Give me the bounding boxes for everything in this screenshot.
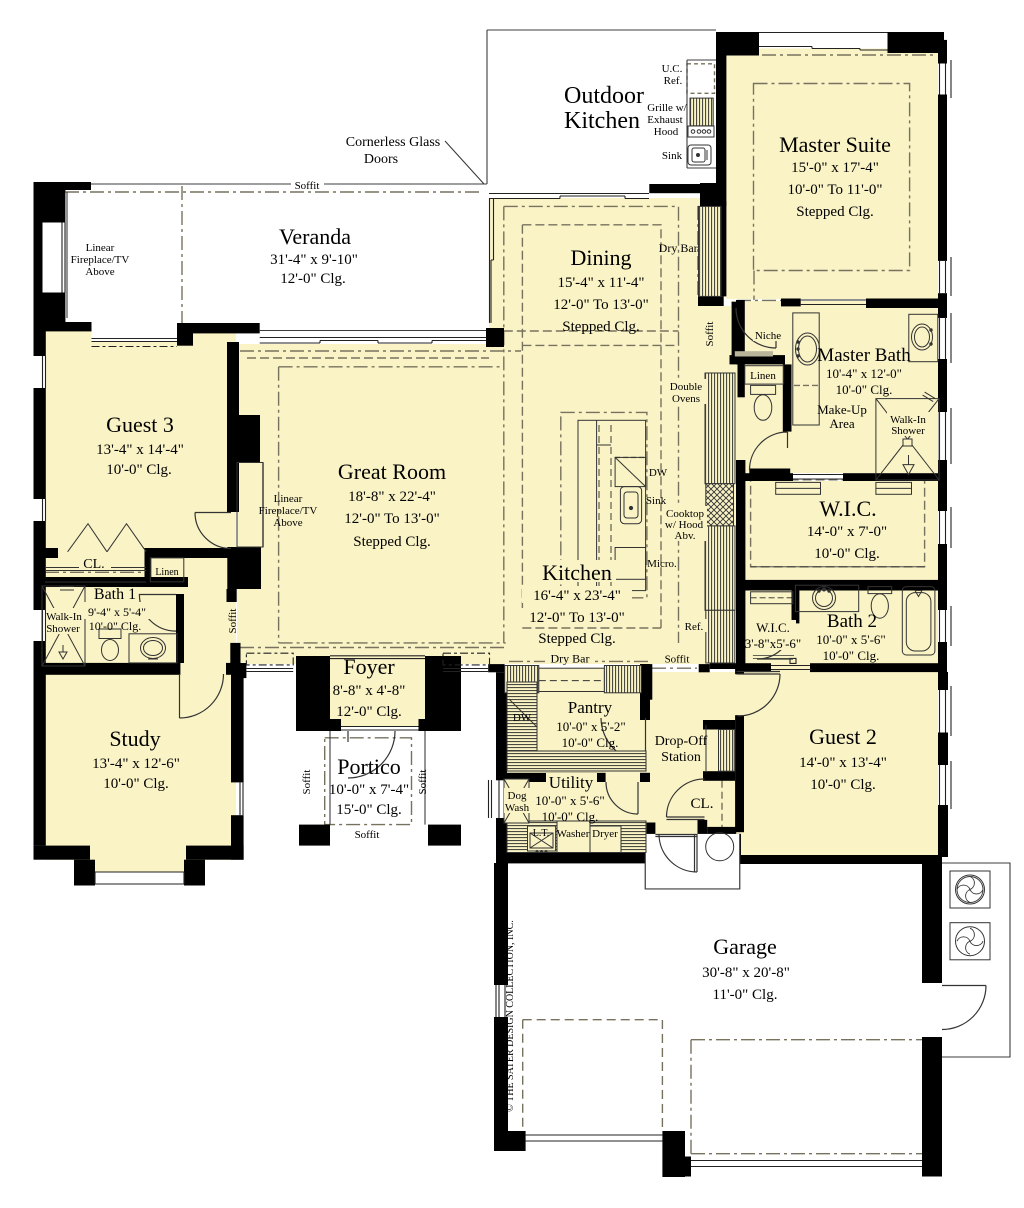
svg-text:Dog: Dog: [508, 790, 527, 802]
svg-text:13'-4" x 12'-6": 13'-4" x 12'-6": [92, 756, 180, 772]
svg-text:12'-0" Clg.: 12'-0" Clg.: [280, 271, 346, 287]
svg-text:Area: Area: [829, 416, 854, 431]
svg-text:DW: DW: [513, 712, 532, 724]
svg-text:Soffit: Soffit: [301, 770, 313, 795]
svg-text:Soffit: Soffit: [665, 654, 690, 666]
svg-text:11'-0" Clg.: 11'-0" Clg.: [713, 987, 778, 1003]
svg-text:DW: DW: [649, 467, 668, 479]
svg-text:12'-0" To 13'-0": 12'-0" To 13'-0": [344, 511, 440, 527]
svg-text:Doors: Doors: [364, 152, 398, 167]
svg-text:U.C.: U.C.: [662, 63, 683, 75]
svg-text:Walk-In: Walk-In: [46, 611, 82, 623]
svg-text:CL.: CL.: [83, 557, 104, 572]
svg-text:Above: Above: [273, 517, 302, 529]
svg-text:Linen: Linen: [155, 567, 178, 578]
svg-text:14'-0" x 13'-4": 14'-0" x 13'-4": [799, 755, 887, 771]
svg-text:10'-0" Clg.: 10'-0" Clg.: [814, 546, 880, 562]
svg-text:30'-8" x 20'-8": 30'-8" x 20'-8": [702, 965, 790, 981]
svg-text:Soffit: Soffit: [355, 829, 380, 841]
svg-text:31'-4" x 9'-10": 31'-4" x 9'-10": [270, 252, 358, 268]
svg-text:Master Suite: Master Suite: [779, 132, 891, 157]
svg-text:Linen: Linen: [750, 370, 776, 382]
svg-text:Utility: Utility: [549, 773, 594, 792]
svg-text:Foyer: Foyer: [343, 654, 395, 679]
svg-text:L.T.: L.T.: [533, 828, 549, 839]
svg-text:Kitchen: Kitchen: [542, 560, 612, 585]
svg-text:Study: Study: [109, 726, 160, 751]
svg-text:13'-4" x 14'-4": 13'-4" x 14'-4": [96, 442, 184, 458]
svg-text:Double: Double: [670, 381, 703, 393]
svg-text:Soffit: Soffit: [704, 322, 716, 347]
svg-text:Outdoor: Outdoor: [564, 83, 644, 109]
svg-text:Make-Up: Make-Up: [817, 402, 867, 417]
svg-text:Dry Bar: Dry Bar: [551, 652, 590, 666]
svg-text:W.I.C.: W.I.C.: [819, 496, 876, 521]
svg-text:Cornerless Glass: Cornerless Glass: [346, 135, 441, 150]
svg-text:10'-0" Clg.: 10'-0" Clg.: [823, 648, 880, 663]
svg-text:Master Bath: Master Bath: [817, 345, 911, 366]
svg-text:15'-0" Clg.: 15'-0" Clg.: [336, 802, 402, 818]
svg-text:10'-0" Clg.: 10'-0" Clg.: [106, 462, 172, 478]
svg-text:Drop-Off: Drop-Off: [655, 734, 708, 749]
svg-text:16'-4" x 23'-4": 16'-4" x 23'-4": [533, 588, 621, 604]
svg-text:Fireplace/TV: Fireplace/TV: [259, 505, 318, 517]
svg-text:10'-0" x 5'-6": 10'-0" x 5'-6": [535, 793, 604, 808]
svg-text:10'-0" x 7'-4": 10'-0" x 7'-4": [329, 782, 409, 798]
svg-text:12'-0" To 13'-0": 12'-0" To 13'-0": [553, 297, 649, 313]
svg-text:Ref.: Ref.: [685, 621, 704, 633]
svg-text:Wash: Wash: [505, 802, 530, 814]
svg-text:Above: Above: [85, 266, 114, 278]
svg-text:Sink: Sink: [662, 150, 683, 162]
svg-text:10'-0" Clg.: 10'-0" Clg.: [103, 776, 169, 792]
svg-text:12'-0" Clg.: 12'-0" Clg.: [336, 704, 402, 720]
svg-text:Ovens: Ovens: [672, 393, 700, 405]
svg-text:Sink: Sink: [646, 495, 667, 507]
svg-text:Exhaust: Exhaust: [647, 114, 682, 126]
svg-text:3'-8"x5'-6": 3'-8"x5'-6": [745, 636, 801, 651]
svg-text:Soffit: Soffit: [295, 180, 320, 192]
svg-text:Abv.: Abv.: [675, 530, 696, 542]
svg-text:Ref.: Ref.: [664, 75, 683, 87]
svg-text:Great Room: Great Room: [338, 459, 446, 484]
svg-text:Bar: Bar: [680, 241, 697, 255]
svg-text:Soffit: Soffit: [417, 770, 429, 795]
svg-text:14'-0" x 7'-0": 14'-0" x 7'-0": [807, 524, 887, 540]
svg-text:Pantry: Pantry: [568, 698, 613, 717]
svg-text:Bath 2: Bath 2: [827, 611, 877, 632]
svg-text:10'-0" x 5'-6": 10'-0" x 5'-6": [816, 632, 885, 647]
svg-text:Guest 2: Guest 2: [809, 724, 877, 749]
svg-text:Shower: Shower: [46, 623, 80, 635]
svg-text:10'-0" Clg.: 10'-0" Clg.: [836, 382, 893, 397]
svg-text:W.I.C.: W.I.C.: [756, 620, 790, 635]
svg-text:10'-4" x 12'-0": 10'-4" x 12'-0": [826, 366, 902, 381]
svg-text:Washer: Washer: [557, 828, 590, 840]
svg-text:Garage: Garage: [713, 934, 777, 959]
svg-text:10'-0" Clg.: 10'-0" Clg.: [89, 619, 141, 633]
svg-text:Micro.: Micro.: [647, 558, 677, 570]
svg-text:Stepped Clg.: Stepped Clg.: [562, 319, 640, 335]
svg-text:Linear: Linear: [274, 493, 303, 505]
svg-text:Stepped Clg.: Stepped Clg.: [796, 204, 874, 220]
svg-text:Portico: Portico: [337, 754, 401, 779]
svg-text:Fireplace/TV: Fireplace/TV: [71, 254, 130, 266]
svg-text:Kitchen: Kitchen: [564, 108, 640, 134]
svg-text:10'-0" Clg.: 10'-0" Clg.: [542, 809, 599, 824]
svg-text:Stepped Clg.: Stepped Clg.: [538, 631, 616, 647]
svg-text:Dryer: Dryer: [592, 828, 618, 840]
svg-text:Linear: Linear: [86, 242, 115, 254]
svg-text:8'-8" x 4'-8": 8'-8" x 4'-8": [333, 683, 406, 699]
svg-text:Stepped Clg.: Stepped Clg.: [353, 534, 431, 550]
svg-text:Shower: Shower: [891, 425, 925, 437]
svg-text:10'-0" x 5'-2": 10'-0" x 5'-2": [556, 719, 625, 734]
svg-text:10'-0" Clg.: 10'-0" Clg.: [562, 735, 619, 750]
svg-text:CL.: CL.: [691, 796, 714, 812]
svg-text:Bath 1: Bath 1: [94, 586, 136, 603]
svg-text:10'-0" To 11'-0": 10'-0" To 11'-0": [788, 182, 883, 198]
svg-text:Veranda: Veranda: [279, 224, 351, 249]
svg-text:Dry: Dry: [659, 241, 678, 255]
svg-text:Grille w/: Grille w/: [647, 102, 687, 114]
svg-text:Soffit: Soffit: [227, 609, 239, 634]
svg-text:Niche: Niche: [755, 330, 781, 342]
svg-text:© THE SATER DESIGN COLLECTION,: © THE SATER DESIGN COLLECTION, INC.: [505, 920, 516, 1112]
svg-text:10'-0" Clg.: 10'-0" Clg.: [810, 777, 876, 793]
svg-text:Guest 3: Guest 3: [106, 412, 174, 437]
svg-text:9'-4" x 5'-4": 9'-4" x 5'-4": [88, 605, 146, 619]
svg-text:15'-4" x 11'-4": 15'-4" x 11'-4": [557, 275, 644, 291]
svg-text:Dining: Dining: [570, 245, 631, 270]
svg-text:12'-0" To 13'-0": 12'-0" To 13'-0": [529, 610, 625, 626]
svg-text:Hood: Hood: [654, 126, 679, 138]
svg-text:Station: Station: [661, 750, 701, 765]
svg-text:15'-0" x 17'-4": 15'-0" x 17'-4": [791, 160, 879, 176]
svg-text:18'-8" x 22'-4": 18'-8" x 22'-4": [348, 489, 436, 505]
